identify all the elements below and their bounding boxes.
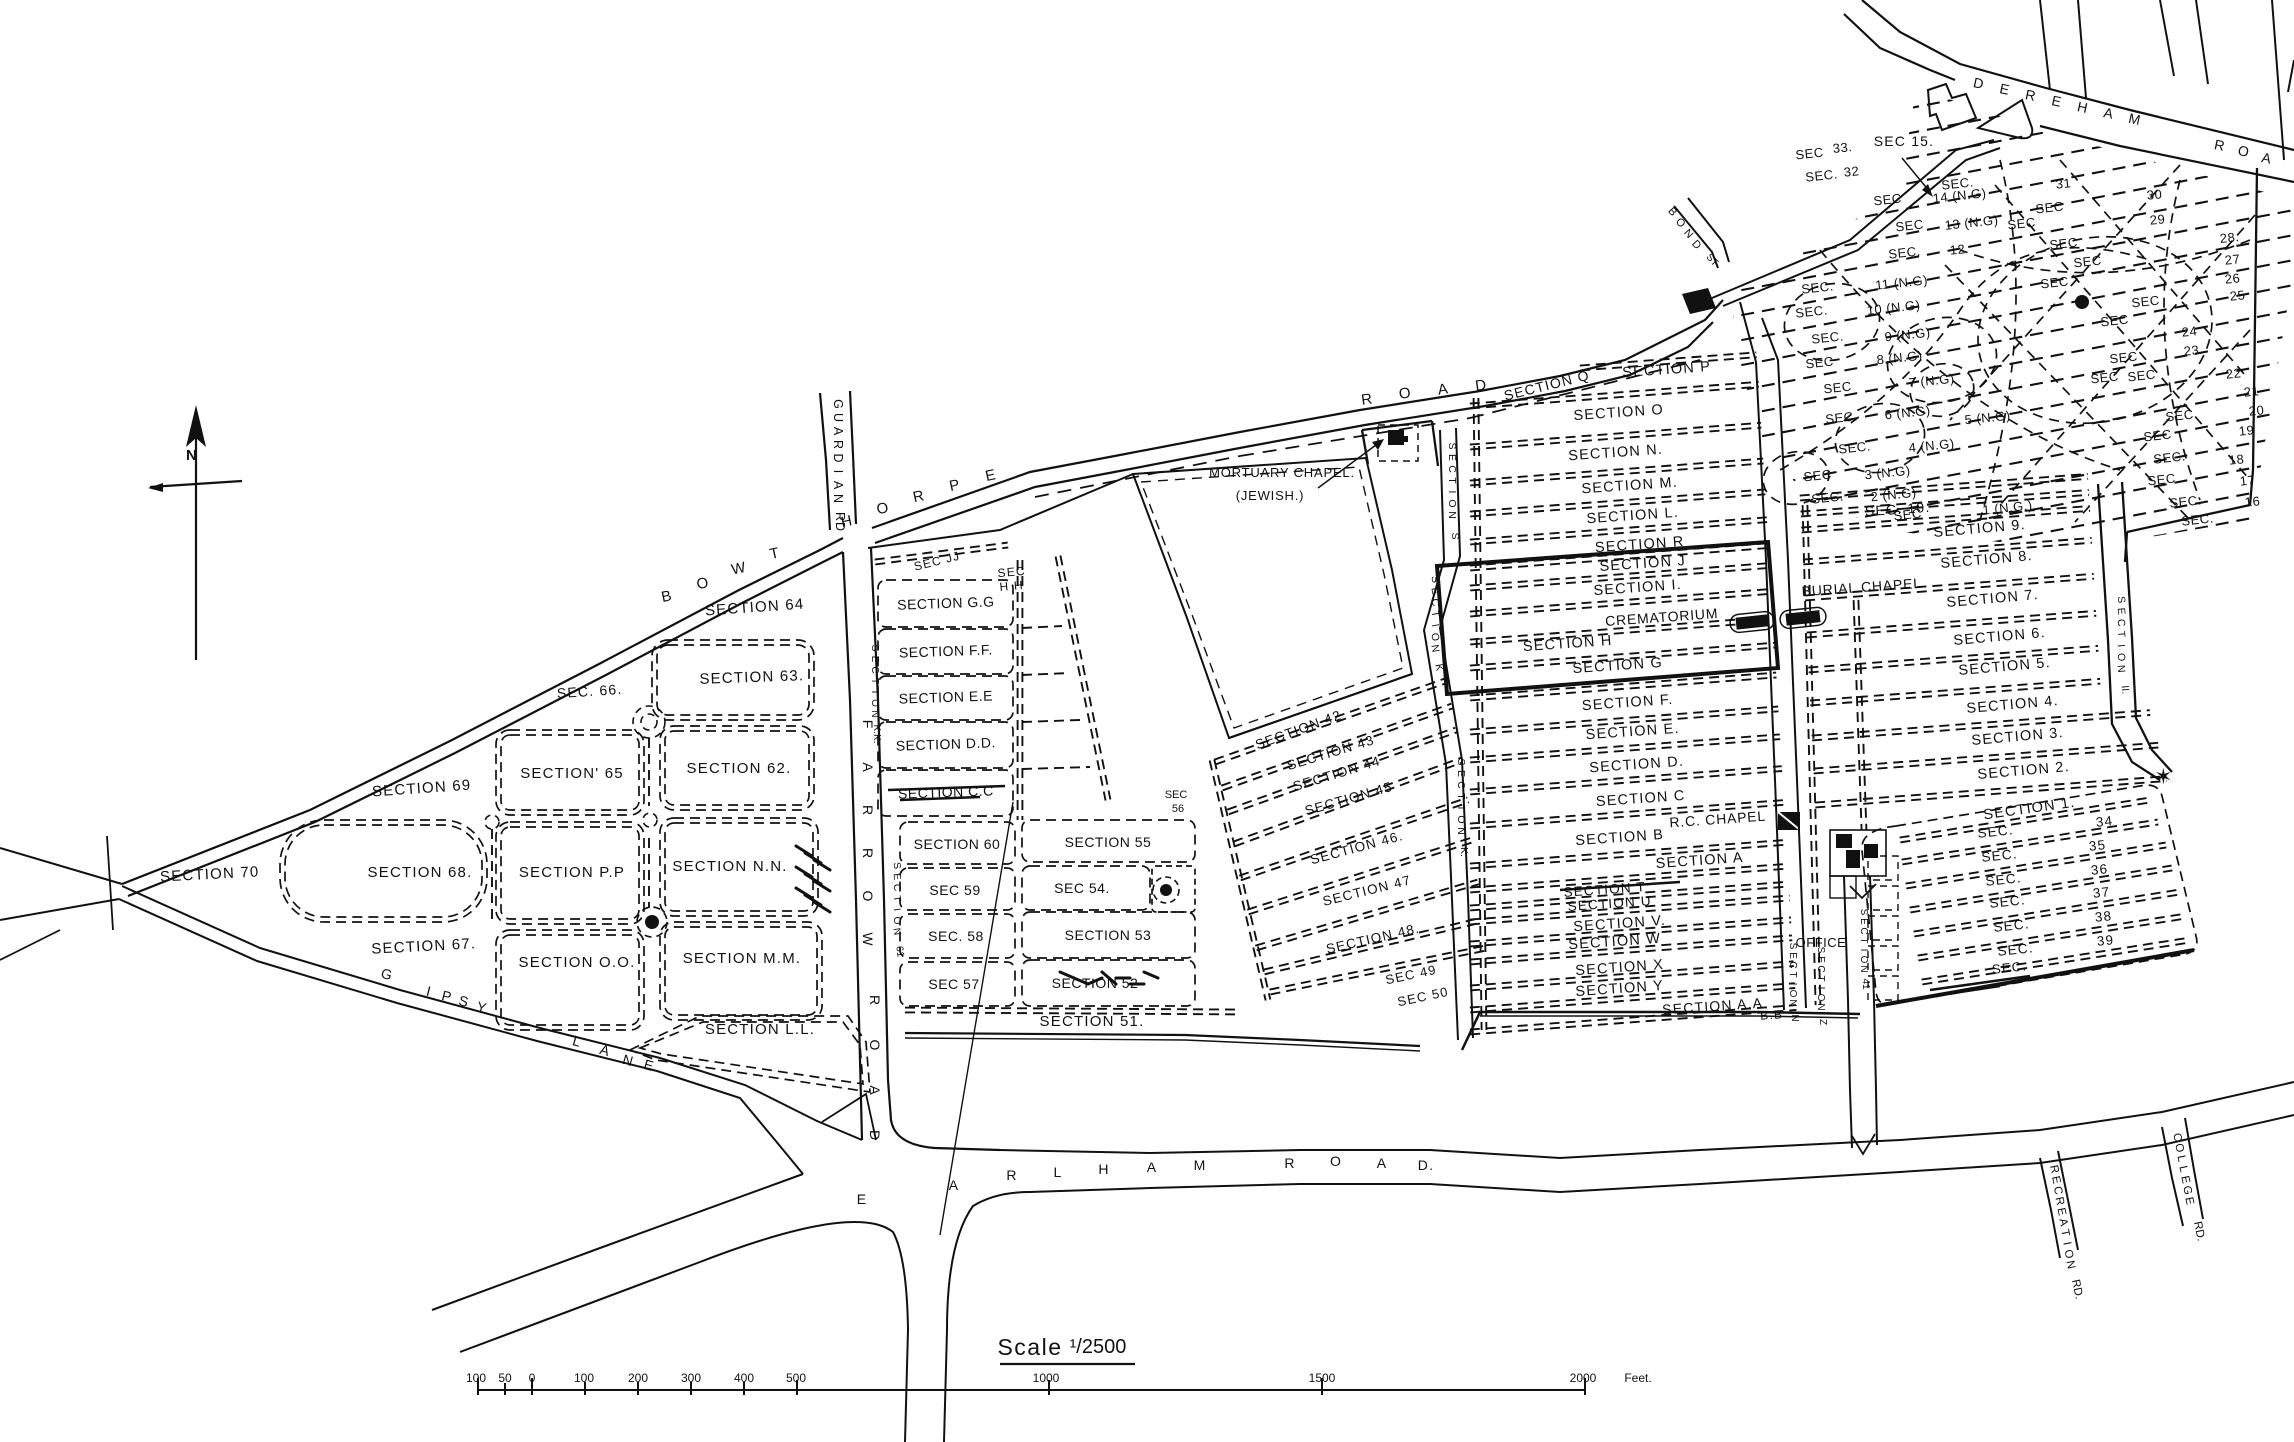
svg-text:SECTION G.G: SECTION G.G (897, 593, 995, 612)
svg-text:SECTION M.M.: SECTION M.M. (683, 950, 802, 967)
svg-text:R: R (860, 805, 876, 815)
svg-text:I: I (1446, 491, 1458, 494)
svg-text:38: 38 (2094, 908, 2113, 925)
svg-text:I: I (1455, 807, 1467, 810)
svg-text:R: R (1006, 1167, 1017, 1183)
svg-text:II.: II. (2119, 685, 2132, 695)
svg-text:SECTION N.N.: SECTION N.N. (672, 858, 787, 875)
svg-text:SEC 57: SEC 57 (928, 976, 979, 992)
svg-text:12: 12 (1949, 241, 1966, 258)
svg-text:20: 20 (2248, 402, 2265, 419)
svg-text:SECTION' 65: SECTION' 65 (520, 765, 624, 782)
svg-text:K.: K. (1458, 847, 1470, 857)
svg-text:SECTION O.O.: SECTION O.O. (519, 954, 636, 971)
svg-text:T: T (1455, 793, 1467, 800)
svg-text:SECTION L.L.: SECTION L.L. (705, 1021, 815, 1038)
svg-text:SEC: SEC (1165, 789, 1188, 801)
svg-text:39: 39 (2096, 932, 2115, 949)
svg-text:SECTION 68.: SECTION 68. (368, 864, 473, 881)
svg-text:T: T (1815, 975, 1826, 981)
svg-text:SEC: SEC (2007, 215, 2037, 233)
svg-text:I: I (1787, 983, 1798, 986)
svg-text:SEC: SEC (2143, 427, 2173, 445)
svg-text:R: R (831, 440, 845, 449)
svg-text:SEC: SEC (2040, 274, 2070, 292)
svg-text:16: 16 (2244, 493, 2261, 510)
svg-text:C: C (1446, 465, 1458, 473)
svg-text:S: S (1446, 442, 1458, 449)
svg-text:O: O (1330, 1153, 1342, 1169)
svg-text:A: A (831, 427, 845, 436)
svg-text:SECTION 62.: SECTION 62. (687, 760, 792, 777)
svg-text:A: A (1147, 1159, 1158, 1175)
svg-text:SECTION F.F.: SECTION F.F. (899, 641, 993, 660)
svg-text:SEC 54.: SEC 54. (1054, 880, 1110, 896)
svg-text:C: C (869, 666, 880, 673)
svg-text:100: 100 (466, 1371, 486, 1385)
svg-text:C: C (1787, 961, 1798, 968)
svg-text:N: N (1815, 1003, 1826, 1010)
svg-text:R: R (860, 848, 876, 858)
svg-text:M: M (1194, 1157, 1207, 1173)
svg-text:32: 32 (1843, 163, 1860, 180)
svg-text:SECTION P.P: SECTION P.P (519, 864, 625, 881)
svg-text:SEC 15.: SEC 15. (1874, 133, 1935, 149)
svg-text:U: U (831, 413, 845, 422)
svg-text:A: A (860, 762, 876, 772)
svg-text:C: C (1858, 927, 1869, 934)
svg-text:41: 41 (1860, 978, 1871, 990)
svg-text:SEC: SEC (2131, 293, 2161, 311)
svg-text:L: L (1054, 1164, 1063, 1180)
svg-text:A: A (1437, 380, 1450, 398)
svg-text:SECTION E.E: SECTION E.E (898, 687, 993, 706)
svg-text:100: 100 (574, 1371, 594, 1385)
svg-text:N: N (2115, 664, 2128, 673)
svg-text:18: 18 (2228, 451, 2245, 468)
svg-text:E: E (857, 1191, 868, 1207)
svg-text:25: 25 (2229, 287, 2246, 304)
svg-text:N: N (186, 447, 198, 464)
svg-text:O: O (1815, 994, 1826, 1002)
svg-text:SEC: SEC (2049, 235, 2079, 253)
svg-text:O: O (2115, 653, 2128, 662)
svg-text:I: I (1858, 949, 1869, 952)
svg-text:26: 26 (2224, 270, 2241, 287)
svg-text:23: 23 (2183, 342, 2200, 359)
svg-text:300: 300 (681, 1371, 701, 1385)
svg-text:29: 29 (2149, 211, 2166, 228)
svg-text:C: C (1815, 965, 1826, 972)
svg-text:21: 21 (2243, 383, 2260, 400)
svg-text:R: R (867, 995, 883, 1005)
svg-text:T: T (1446, 477, 1458, 484)
svg-text:SEC. 58: SEC. 58 (928, 928, 984, 944)
svg-text:B.B: B.B (1760, 1007, 1784, 1023)
svg-text:56: 56 (1172, 803, 1184, 815)
svg-text:H: H (1098, 1161, 1109, 1177)
svg-text:N: N (1446, 511, 1458, 519)
svg-text:200: 200 (628, 1371, 648, 1385)
svg-text:22: 22 (2225, 365, 2242, 382)
svg-text:E: E (1787, 952, 1798, 959)
svg-text:30: 30 (2146, 186, 2163, 203)
svg-text:N: N (869, 710, 880, 717)
svg-text:SEC: SEC (1873, 191, 1903, 209)
svg-text:S: S (1858, 909, 1869, 916)
svg-text:400: 400 (734, 1371, 754, 1385)
svg-text:E: E (1455, 770, 1467, 777)
svg-text:O: O (1787, 990, 1798, 998)
svg-text:G: G (831, 399, 845, 409)
svg-text:19: 19 (2238, 422, 2255, 439)
svg-text:17: 17 (2239, 472, 2256, 489)
svg-text:31: 31 (2055, 175, 2072, 192)
svg-text:T: T (1858, 937, 1869, 943)
svg-text:N: N (1789, 1014, 1800, 1021)
svg-text:SEC: SEC (1895, 217, 1925, 235)
svg-text:N: N (1787, 999, 1798, 1006)
svg-text:N: N (1455, 827, 1467, 835)
svg-text:SEC: SEC (2073, 253, 2103, 271)
svg-text:O: O (860, 891, 876, 902)
svg-text:0: 0 (529, 1371, 536, 1385)
svg-text:D: D (831, 453, 845, 462)
svg-text:A: A (831, 481, 845, 490)
svg-text:SEC: SEC (2100, 312, 2130, 330)
svg-text:T: T (1787, 971, 1798, 977)
svg-text:C: C (1455, 781, 1467, 789)
svg-text:27: 27 (2224, 251, 2241, 268)
svg-text:37: 37 (2092, 884, 2111, 901)
svg-text:I: I (831, 470, 845, 473)
svg-text:SEC: SEC (2090, 369, 2120, 387)
svg-text:E: E (1446, 454, 1458, 461)
svg-text:D.: D. (1418, 1157, 1434, 1173)
svg-text:34: 34 (2095, 813, 2114, 830)
svg-text:SEC 59: SEC 59 (929, 882, 980, 898)
svg-text:SEC: SEC (2127, 367, 2157, 385)
svg-text:500: 500 (786, 1371, 806, 1385)
svg-text:O: O (867, 1040, 883, 1051)
svg-text:✶: ✶ (2154, 764, 2174, 789)
svg-text:O: O (1398, 384, 1413, 403)
svg-text:35: 35 (2088, 837, 2107, 854)
svg-text:SEC: SEC (2147, 471, 2177, 489)
svg-text:Z: Z (1817, 1019, 1828, 1025)
svg-text:RD: RD (833, 512, 847, 532)
svg-text:36: 36 (2090, 861, 2109, 878)
svg-text:O: O (1455, 815, 1467, 823)
svg-text:SECTION 55: SECTION 55 (1065, 834, 1152, 850)
svg-text:SECTION 53: SECTION 53 (1065, 927, 1152, 943)
svg-text:E: E (2115, 607, 2128, 615)
svg-text:E: E (1815, 956, 1826, 963)
svg-text:Scale: Scale (997, 1334, 1062, 1360)
svg-text:SEC: SEC (2035, 199, 2065, 217)
svg-text:SEC: SEC (1823, 379, 1853, 397)
svg-text:W: W (860, 932, 876, 946)
svg-text:SEC: SEC (1803, 467, 1833, 485)
svg-text:¹/2500: ¹/2500 (1070, 1336, 1127, 1358)
svg-text:E: E (1858, 918, 1869, 925)
svg-text:R: R (1284, 1155, 1295, 1171)
svg-text:S: S (1455, 758, 1467, 765)
svg-text:N: N (831, 494, 845, 503)
svg-text:SEC: SEC (1893, 506, 1923, 524)
svg-text:SECTION 60: SECTION 60 (914, 836, 1001, 852)
svg-text:24: 24 (2181, 323, 2198, 340)
svg-text:O: O (1446, 499, 1458, 507)
svg-text:R: R (1360, 390, 1374, 409)
svg-text:C: C (2115, 618, 2128, 627)
svg-text:2000: 2000 (1570, 1371, 1597, 1385)
svg-text:(JEWISH.): (JEWISH.) (1236, 488, 1305, 503)
svg-text:1500: 1500 (1309, 1371, 1336, 1385)
svg-text:A: A (1377, 1155, 1388, 1171)
svg-text:D: D (1474, 376, 1488, 395)
svg-text:N: N (1858, 965, 1869, 972)
svg-text:SEC: SEC (2109, 349, 2139, 367)
svg-text:33.: 33. (1832, 139, 1853, 156)
svg-text:SEC: SEC (1795, 145, 1825, 163)
svg-text:SECTION 51.: SECTION 51. (1040, 1013, 1145, 1030)
svg-text:S: S (1815, 947, 1826, 954)
svg-text:28.: 28. (2219, 229, 2240, 246)
svg-text:A: A (949, 1177, 960, 1193)
svg-text:S: S (2115, 596, 2128, 604)
svg-text:S: S (1449, 532, 1461, 539)
svg-text:50: 50 (498, 1371, 512, 1385)
svg-text:O: O (1858, 956, 1869, 964)
svg-text:SEC: SEC (2165, 407, 2195, 425)
svg-text:K.K.: K.K. (871, 725, 882, 744)
svg-text:SEC: SEC (1805, 354, 1835, 372)
svg-text:Feet.: Feet. (1624, 1371, 1651, 1385)
svg-text:T: T (869, 678, 880, 684)
svg-text:1000: 1000 (1033, 1371, 1060, 1385)
svg-text:I: I (1815, 987, 1826, 990)
